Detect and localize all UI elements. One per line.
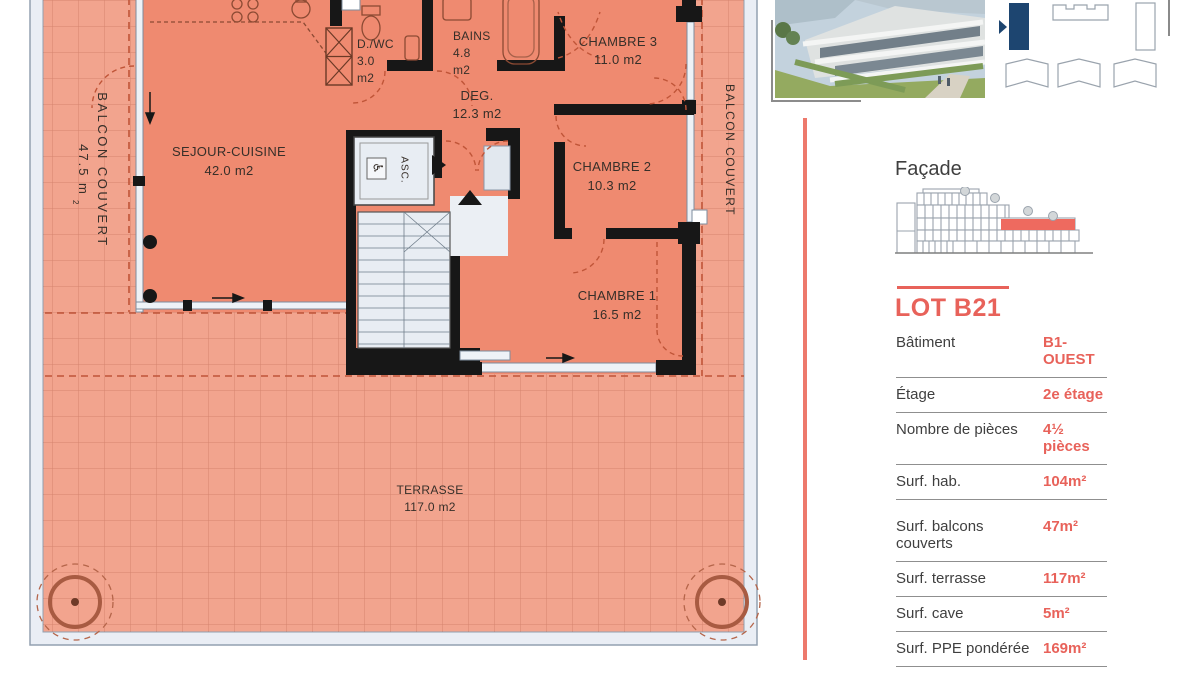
room-area-sejour: 42.0 m2 <box>204 163 253 178</box>
facade-elevation <box>893 187 1098 259</box>
vertical-divider <box>803 118 807 660</box>
room-label-chambre3: CHAMBRE 3 <box>579 34 658 49</box>
row-label: Bâtiment <box>896 334 1043 351</box>
room-label-chambre2: CHAMBRE 2 <box>573 159 652 174</box>
table-row: Nombre de pièces 4½ pièces <box>896 413 1107 465</box>
table-row: Bâtiment B1-OUEST <box>896 326 1107 378</box>
balcony-right-label: BALCON COUVERT <box>723 84 737 216</box>
elevator-label: ASC. <box>398 156 409 183</box>
site-plan-pointer-icon <box>999 20 1007 34</box>
table-row: Surf. terrasse 117m² <box>896 562 1107 597</box>
balcony-left-label: BALCON COUVERT <box>95 92 110 247</box>
room-label-sejour: SEJOUR-CUISINE <box>172 144 286 159</box>
row-label: Étage <box>896 386 1043 403</box>
room-area-chambre1: 16.5 m2 <box>592 307 641 322</box>
row-value: 117m² <box>1043 570 1107 587</box>
lot-title-rule <box>897 286 1009 289</box>
room-label-terrasse: TERRASSE <box>396 483 463 497</box>
row-value: 5m² <box>1043 605 1107 622</box>
table-row: Surf. cave 5m² <box>896 597 1107 632</box>
row-label: Surf. balcons couverts <box>896 518 1043 552</box>
row-label: Surf. hab. <box>896 473 1043 490</box>
row-label: Surf. cave <box>896 605 1043 622</box>
room-area-chambre3: 11.0 m2 <box>594 52 642 67</box>
row-label: Surf. terrasse <box>896 570 1043 587</box>
entry-door-panel <box>484 146 510 190</box>
room-label-bains: BAINS <box>453 29 491 43</box>
room-area-bains: 4.8 <box>453 46 471 60</box>
site-plan <box>995 0 1200 100</box>
table-row: Surf. hab. 104m² <box>896 465 1107 500</box>
row-value: 104m² <box>1043 473 1107 490</box>
row-label: Surf. PPE pondérée <box>896 640 1043 657</box>
room-area-chambre2: 10.3 m2 <box>587 178 636 193</box>
room-area-terrasse: 117.0 m2 <box>404 500 456 514</box>
room-label-dwc: D./WC <box>357 37 394 51</box>
balcony-left-area-sup: 2 <box>71 200 80 205</box>
facade-title: Façade <box>895 158 962 181</box>
lot-details-table: Bâtiment B1-OUEST Étage 2e étage Nombre … <box>896 326 1107 667</box>
room-area-unit-dwc: m2 <box>357 71 374 85</box>
balcony-left-area: 47.5 m <box>76 144 91 196</box>
room-area-dwc: 3.0 <box>357 54 375 68</box>
room-label-deg: DEG. <box>461 88 494 103</box>
staircase <box>358 212 450 348</box>
elevator: ♿ ASC. <box>354 137 446 205</box>
cabinet-icon <box>326 28 352 85</box>
row-value: 2e étage <box>1043 386 1107 403</box>
site-plan-current-building <box>1009 3 1029 50</box>
row-value: 169m² <box>1043 640 1107 657</box>
room-area-deg: 12.3 m2 <box>452 106 501 121</box>
photo-corner-bracket <box>771 20 861 102</box>
table-row: Surf. balcons couverts 47m² <box>896 510 1107 562</box>
table-row: Étage 2e étage <box>896 378 1107 413</box>
table-row: Surf. PPE pondérée 169m² <box>896 632 1107 667</box>
floor-plan: ♿ ASC. <box>0 0 770 655</box>
lot-title: LOT B21 <box>895 294 1001 323</box>
room-area-unit-bains: m2 <box>453 63 470 77</box>
row-label: Nombre de pièces <box>896 421 1043 438</box>
room-label-chambre1: CHAMBRE 1 <box>578 288 657 303</box>
door-opening <box>342 0 360 10</box>
row-value: 4½ pièces <box>1043 421 1107 455</box>
row-value: 47m² <box>1043 518 1107 535</box>
core-window <box>460 351 510 360</box>
wheelchair-icon: ♿ <box>371 162 386 174</box>
row-value: B1-OUEST <box>1043 334 1107 368</box>
facade-lot-highlight <box>1001 219 1075 230</box>
